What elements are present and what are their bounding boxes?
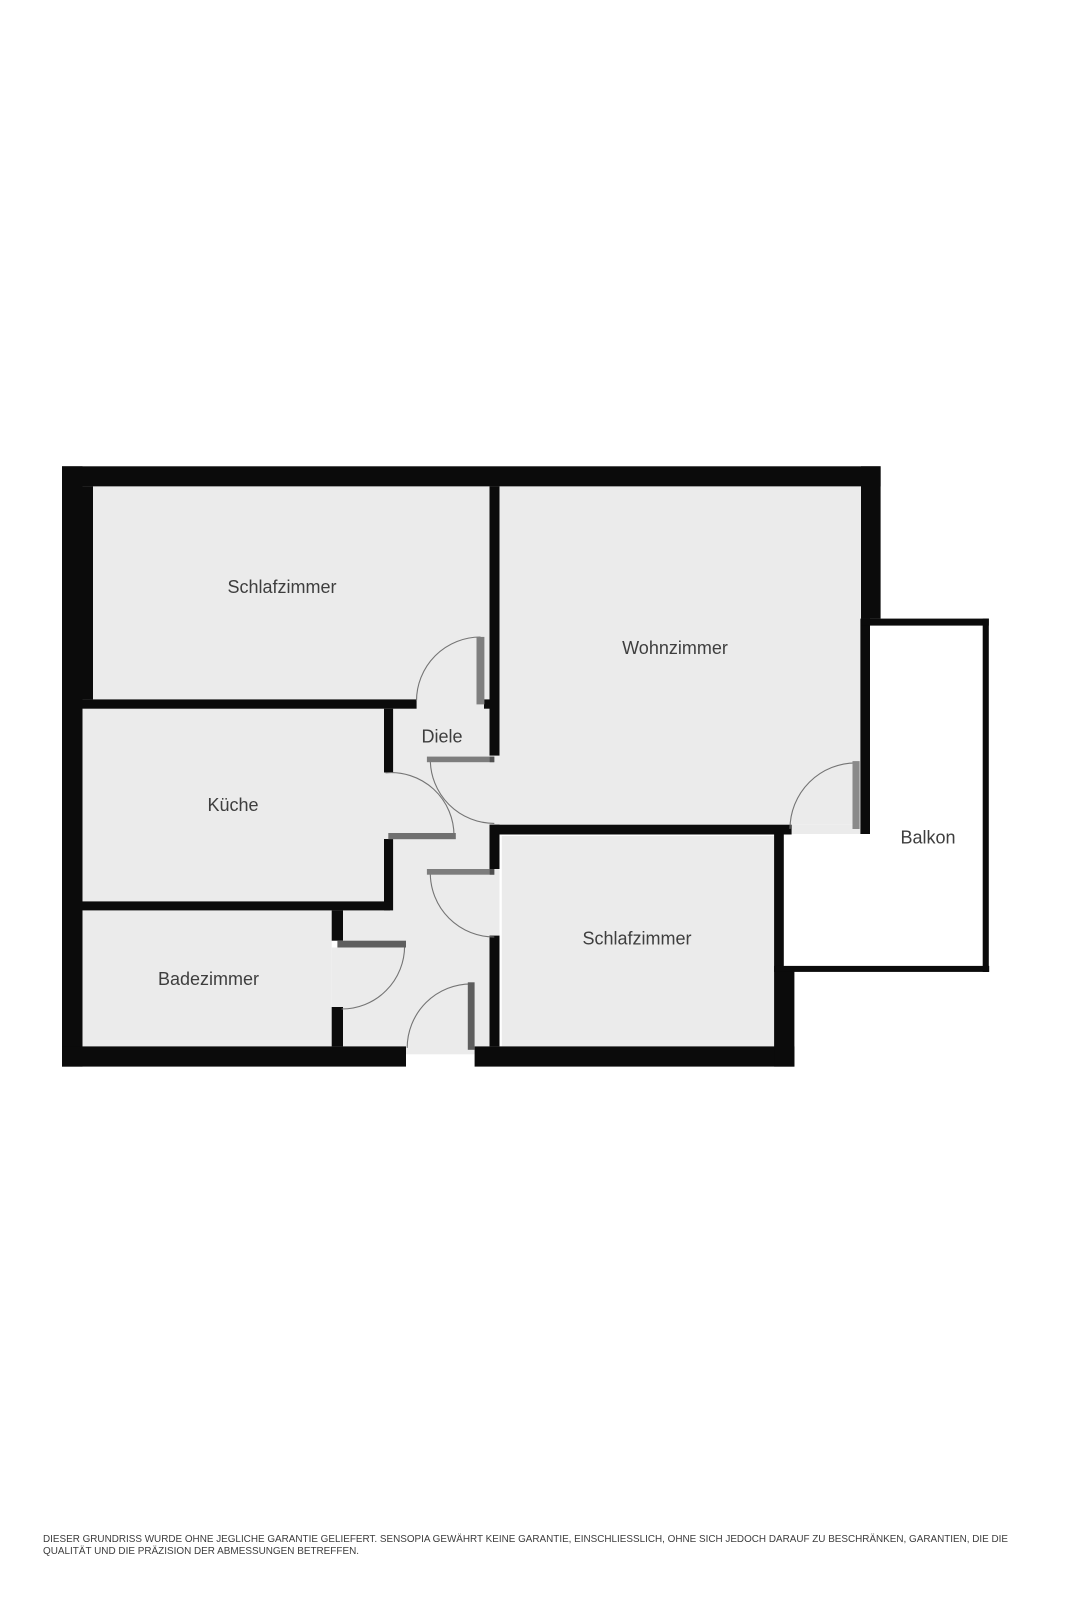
svg-text:Wohnzimmer: Wohnzimmer	[622, 638, 728, 658]
svg-text:Küche: Küche	[207, 795, 258, 815]
svg-text:DIESER GRUNDRISS WURDE OHNE JE: DIESER GRUNDRISS WURDE OHNE JEGLICHE GAR…	[43, 1533, 1008, 1545]
svg-text:Schlafzimmer: Schlafzimmer	[227, 577, 336, 597]
svg-text:Balkon: Balkon	[900, 828, 955, 848]
svg-text:QUALITÄT UND DIE PRÄZISION DER: QUALITÄT UND DIE PRÄZISION DER ABMESSUNG…	[43, 1545, 359, 1557]
svg-text:Badezimmer: Badezimmer	[158, 969, 259, 989]
svg-text:Schlafzimmer: Schlafzimmer	[582, 929, 691, 949]
svg-text:Diele: Diele	[421, 727, 462, 747]
